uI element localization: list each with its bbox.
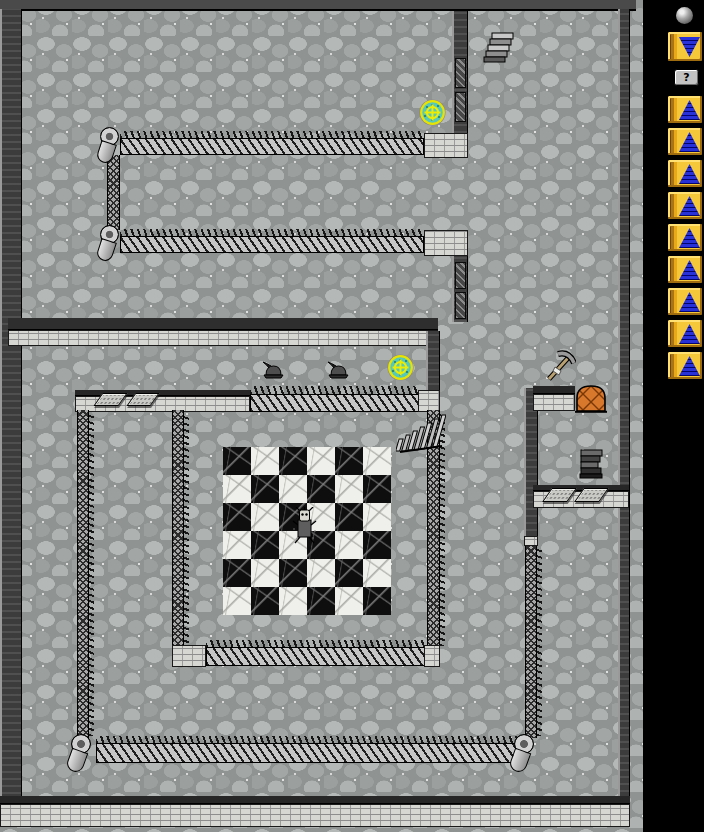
portal-rune-icon[interactable] [387, 354, 414, 381]
east-stub-edge [533, 386, 575, 394]
rail-spikes [120, 229, 424, 236]
checker-tile[interactable] [307, 447, 335, 475]
checker-tile[interactable] [223, 531, 251, 559]
pyramid-up-icon [679, 132, 700, 152]
inner-wall-west [172, 410, 184, 652]
checker-tile[interactable] [223, 475, 251, 503]
spell-pyramid-button[interactable] [667, 351, 703, 380]
rail-bottom [96, 743, 518, 763]
pyramid-up-icon [679, 196, 700, 216]
checker-tile[interactable] [363, 559, 391, 587]
spell-pyramid-button[interactable] [667, 95, 703, 124]
inner-wall-south-spikes [206, 640, 426, 647]
descend-button[interactable] [667, 31, 703, 62]
helmet-icon[interactable] [262, 361, 285, 380]
creature[interactable] [291, 507, 318, 544]
checker-tile[interactable] [251, 447, 279, 475]
wall-cross-edge [8, 318, 438, 330]
checker-tile[interactable] [251, 503, 279, 531]
east-stub-wall [533, 394, 575, 411]
pyramid-down-icon [679, 37, 700, 57]
checker-tile[interactable] [363, 531, 391, 559]
checker-tile[interactable] [251, 531, 279, 559]
dungeon-map[interactable] [0, 0, 643, 832]
checker-tile[interactable] [223, 559, 251, 587]
wall-right [618, 9, 630, 799]
spell-pyramid-button[interactable] [667, 319, 703, 348]
rail-post [100, 225, 124, 259]
checker-tile[interactable] [335, 475, 363, 503]
checker-tile[interactable] [279, 447, 307, 475]
inner-wall-corner [172, 645, 206, 667]
checker-tile[interactable] [279, 475, 307, 503]
pyramid-up-icon [679, 100, 700, 120]
spell-pyramid-button[interactable] [667, 255, 703, 284]
wall-left [0, 9, 22, 801]
room-top-wall-fence [250, 394, 420, 412]
pyramid-up-icon [679, 228, 700, 248]
checker-tile[interactable] [307, 587, 335, 615]
wall-bottom [0, 804, 630, 827]
spell-button-column [667, 95, 703, 383]
room-wall-east-spikes [537, 548, 542, 736]
wall-bottom-edge [0, 796, 630, 804]
checker-tile[interactable] [335, 559, 363, 587]
checker-tile[interactable] [335, 587, 363, 615]
spell-pyramid-button[interactable] [667, 159, 703, 188]
checker-tile[interactable] [363, 475, 391, 503]
wall-cross-stub [426, 331, 440, 392]
checker-tile[interactable] [251, 559, 279, 587]
spell-pyramid-button[interactable] [667, 127, 703, 156]
pyramid-up-icon [679, 356, 700, 376]
game-window: ? [0, 0, 704, 832]
stairs-down-icon[interactable] [482, 32, 515, 63]
checker-tile[interactable] [363, 447, 391, 475]
rail-spikes [120, 131, 424, 138]
wooden-door-icon[interactable] [574, 383, 608, 413]
wall-cross [8, 330, 438, 346]
portal-rune-icon[interactable] [419, 99, 446, 126]
checker-tile[interactable] [335, 531, 363, 559]
door-panel[interactable] [455, 58, 466, 88]
checker-tile[interactable] [279, 559, 307, 587]
spell-pyramid-button[interactable] [667, 287, 703, 316]
door-panel[interactable] [455, 292, 466, 319]
checker-tile[interactable] [335, 447, 363, 475]
checker-tile[interactable] [335, 503, 363, 531]
pickaxe-icon[interactable] [544, 350, 576, 382]
checker-tile[interactable] [307, 559, 335, 587]
pyramid-up-icon [679, 324, 700, 344]
checker-tile[interactable] [279, 587, 307, 615]
checker-tile[interactable] [307, 475, 335, 503]
room-wall-west [77, 410, 89, 738]
checker-tile[interactable] [251, 587, 279, 615]
pyramid-up-icon [679, 292, 700, 312]
inner-wall-south [206, 647, 426, 666]
checker-tile[interactable] [223, 587, 251, 615]
rail-post [71, 734, 97, 770]
rail-bottom-spikes [96, 736, 518, 743]
spell-pyramid-button[interactable] [667, 191, 703, 220]
rail-upper-1 [120, 138, 424, 155]
help-button[interactable]: ? [674, 69, 699, 86]
rail-post [100, 127, 124, 161]
ladder-up-icon[interactable] [396, 408, 446, 453]
helmet-icon[interactable] [327, 361, 350, 380]
checker-tile[interactable] [223, 503, 251, 531]
rail-vertical [107, 155, 120, 230]
sidebar: ? [643, 0, 704, 832]
inner-wall-west-spikes [184, 414, 189, 648]
checker-tile[interactable] [363, 587, 391, 615]
room-top-spikes [250, 386, 420, 394]
door-panel[interactable] [455, 262, 466, 289]
wall-corner-block [424, 230, 468, 256]
wall-top [0, 0, 636, 11]
dark-stairs-icon[interactable] [578, 449, 604, 479]
rail-post [514, 734, 540, 770]
room-wall-east-lower [525, 546, 537, 738]
stone-orb-icon [676, 7, 693, 24]
checker-tile[interactable] [223, 447, 251, 475]
inner-wall-corner [424, 645, 440, 667]
rail-upper-2 [120, 236, 424, 253]
pyramid-up-icon [679, 260, 700, 280]
room-wall-east-cap [524, 536, 538, 546]
door-panel[interactable] [455, 92, 466, 122]
pyramid-up-icon [679, 164, 700, 184]
room-wall-west-spikes [89, 412, 94, 736]
checker-tile[interactable] [251, 475, 279, 503]
spell-pyramid-button[interactable] [667, 223, 703, 252]
wall-corner-block [424, 133, 468, 158]
checker-tile[interactable] [363, 503, 391, 531]
